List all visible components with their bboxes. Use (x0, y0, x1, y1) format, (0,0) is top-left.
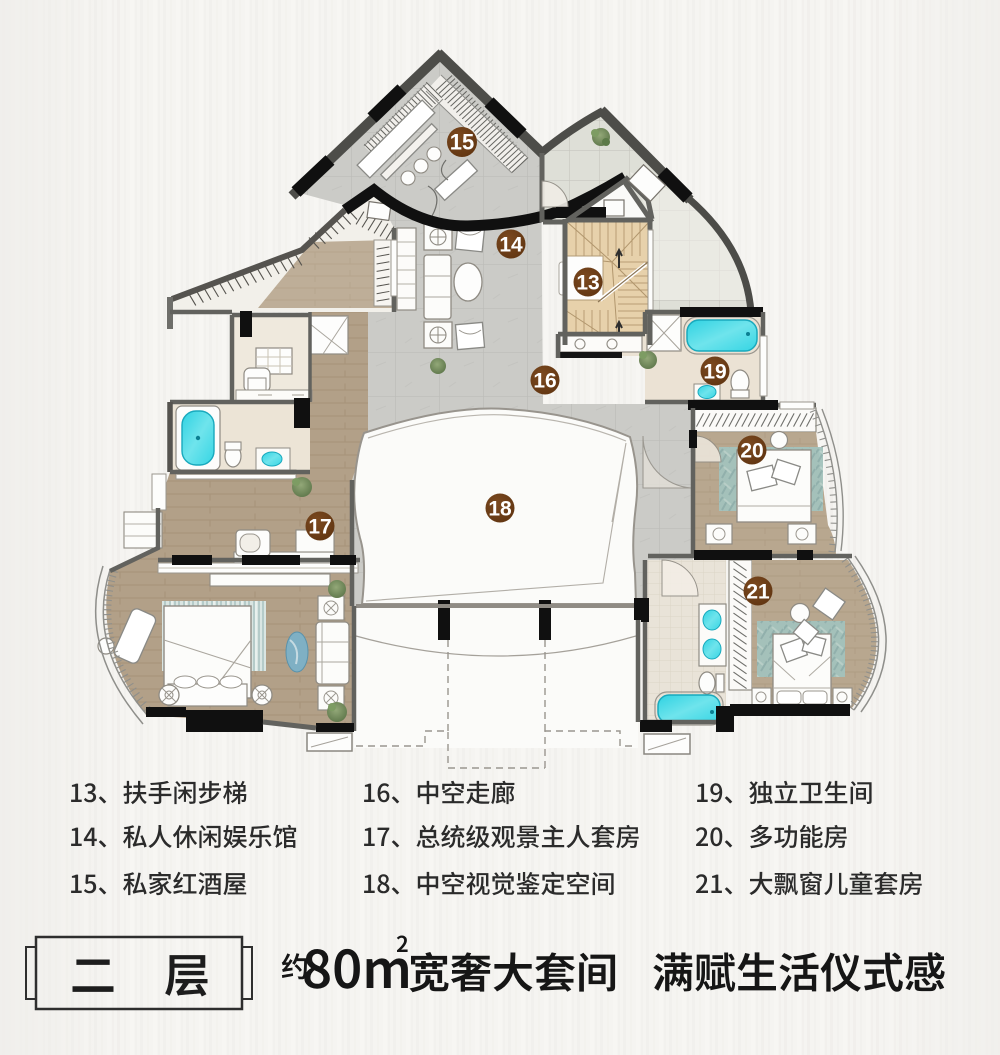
svg-text:16: 16 (533, 369, 556, 392)
svg-text:14: 14 (499, 233, 523, 256)
svg-text:13: 13 (576, 271, 599, 294)
svg-text:19: 19 (703, 360, 726, 383)
svg-text:15: 15 (450, 130, 474, 155)
svg-text:21: 21 (746, 580, 770, 603)
svg-text:20: 20 (740, 439, 763, 462)
svg-text:17: 17 (308, 515, 331, 538)
svg-text:18: 18 (488, 497, 512, 520)
